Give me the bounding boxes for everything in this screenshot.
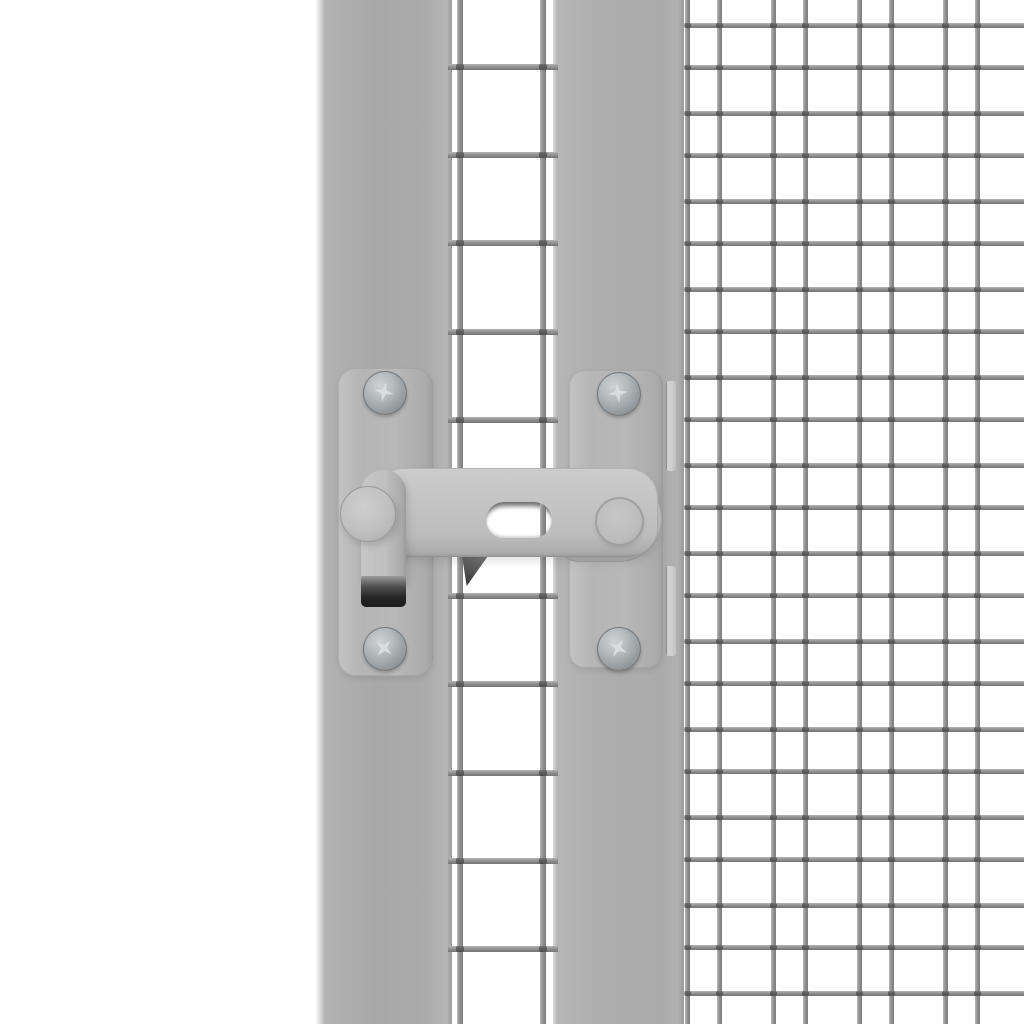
latch-guide-pin (595, 497, 644, 546)
mesh-weld-joint (974, 903, 981, 908)
mesh-weld-joint (942, 727, 949, 732)
mesh-weld-joint (856, 199, 863, 204)
mesh-weld-joint (770, 815, 777, 820)
mesh-weld-joint (856, 65, 863, 70)
mesh-weld-joint (856, 991, 863, 996)
mesh-wire-horizontal (686, 945, 1024, 950)
mesh-weld-joint (974, 991, 981, 996)
mesh-weld-joint (856, 769, 863, 774)
mesh-weld-joint (456, 946, 464, 952)
mesh-weld-joint (974, 551, 981, 556)
mesh-weld-joint (942, 505, 949, 510)
mesh-wire-horizontal (448, 593, 558, 599)
latch-shadow-wedge (462, 556, 488, 586)
mesh-weld-joint (802, 287, 809, 292)
mesh-weld-joint (802, 727, 809, 732)
mesh-weld-joint (684, 287, 691, 292)
mesh-weld-joint (716, 551, 723, 556)
mesh-weld-joint (716, 593, 723, 598)
mesh-weld-joint (942, 815, 949, 820)
mesh-weld-joint (856, 505, 863, 510)
mesh-wire-horizontal (448, 681, 558, 687)
mesh-weld-joint (802, 593, 809, 598)
mesh-weld-joint (974, 593, 981, 598)
mesh-weld-joint (684, 857, 691, 862)
mesh-weld-joint (716, 329, 723, 334)
mesh-weld-joint (539, 329, 547, 335)
mesh-wire-horizontal (448, 152, 558, 158)
mesh-weld-joint (856, 111, 863, 116)
mesh-wire-horizontal (686, 639, 1024, 644)
mesh-weld-joint (716, 65, 723, 70)
mesh-weld-joint (684, 903, 691, 908)
mesh-wire-horizontal (686, 199, 1024, 204)
mesh-weld-joint (856, 903, 863, 908)
mesh-wire-vertical (889, 0, 894, 1024)
mesh-wire-horizontal (448, 417, 558, 423)
mesh-weld-joint (888, 945, 895, 950)
mesh-weld-joint (802, 857, 809, 862)
mesh-wire-horizontal (448, 240, 558, 246)
mesh-weld-joint (770, 417, 777, 422)
mesh-weld-joint (770, 857, 777, 862)
mesh-wire-horizontal (448, 64, 558, 70)
mesh-weld-joint (716, 991, 723, 996)
mesh-weld-joint (770, 287, 777, 292)
mesh-weld-joint (856, 593, 863, 598)
mesh-weld-joint (770, 727, 777, 732)
mesh-weld-joint (716, 727, 723, 732)
latch-adjustment-slot (486, 502, 552, 538)
mesh-weld-joint (684, 681, 691, 686)
mesh-weld-joint (856, 463, 863, 468)
mesh-wire-horizontal (448, 946, 558, 952)
screw-bottom-left (363, 627, 407, 671)
mesh-weld-joint (942, 639, 949, 644)
mesh-weld-joint (888, 65, 895, 70)
product-photo-scene (0, 0, 1024, 1024)
mesh-weld-joint (770, 199, 777, 204)
mesh-weld-joint (888, 551, 895, 556)
mesh-weld-joint (802, 111, 809, 116)
mesh-wire-vertical (975, 0, 980, 1024)
mesh-clip-slot (666, 566, 676, 656)
mesh-wire-horizontal (686, 23, 1024, 28)
mesh-weld-joint (539, 946, 547, 952)
mesh-weld-joint (888, 375, 895, 380)
mesh-weld-joint (888, 111, 895, 116)
mesh-weld-joint (716, 903, 723, 908)
mesh-weld-joint (942, 417, 949, 422)
mesh-wire-vertical (803, 0, 808, 1024)
mesh-weld-joint (716, 23, 723, 28)
mesh-weld-joint (716, 639, 723, 644)
mesh-weld-joint (684, 551, 691, 556)
mesh-wire-vertical (717, 0, 722, 1024)
mesh-weld-joint (974, 23, 981, 28)
mesh-weld-joint (888, 769, 895, 774)
mesh-weld-joint (802, 505, 809, 510)
mesh-weld-joint (456, 329, 464, 335)
mesh-weld-joint (974, 463, 981, 468)
mesh-weld-joint (974, 417, 981, 422)
mesh-weld-joint (716, 241, 723, 246)
mesh-weld-joint (684, 375, 691, 380)
mesh-weld-joint (770, 551, 777, 556)
mesh-weld-joint (684, 593, 691, 598)
mesh-weld-joint (456, 770, 464, 776)
mesh-weld-joint (716, 505, 723, 510)
mesh-weld-joint (684, 945, 691, 950)
mesh-weld-joint (942, 991, 949, 996)
mesh-weld-joint (456, 240, 464, 246)
mesh-weld-joint (770, 505, 777, 510)
mesh-weld-joint (942, 463, 949, 468)
mesh-weld-joint (802, 945, 809, 950)
mesh-weld-joint (888, 593, 895, 598)
mesh-weld-joint (539, 593, 547, 599)
mesh-weld-joint (942, 903, 949, 908)
mesh-weld-joint (456, 681, 464, 687)
mesh-weld-joint (802, 417, 809, 422)
mesh-weld-joint (856, 815, 863, 820)
mesh-weld-joint (770, 945, 777, 950)
mesh-weld-joint (856, 23, 863, 28)
mesh-weld-joint (974, 945, 981, 950)
mesh-wire-through-slot (540, 502, 546, 538)
mesh-weld-joint (684, 769, 691, 774)
mesh-weld-joint (974, 199, 981, 204)
mesh-weld-joint (716, 815, 723, 820)
mesh-clip-slot (666, 381, 676, 471)
mesh-wire-horizontal (686, 153, 1024, 158)
mesh-weld-joint (456, 858, 464, 864)
mesh-weld-joint (716, 945, 723, 950)
mesh-weld-joint (942, 681, 949, 686)
mesh-weld-joint (684, 639, 691, 644)
mesh-weld-joint (770, 769, 777, 774)
mesh-weld-joint (888, 505, 895, 510)
mesh-weld-joint (856, 329, 863, 334)
mesh-weld-joint (888, 417, 895, 422)
mesh-weld-joint (856, 857, 863, 862)
mesh-weld-joint (716, 417, 723, 422)
mesh-weld-joint (802, 199, 809, 204)
mesh-weld-joint (888, 23, 895, 28)
mesh-weld-joint (856, 681, 863, 686)
mesh-weld-joint (684, 153, 691, 158)
mesh-weld-joint (888, 903, 895, 908)
mesh-weld-joint (974, 241, 981, 246)
mesh-weld-joint (856, 945, 863, 950)
latch-handle-dark-tip (361, 576, 406, 607)
mesh-weld-joint (456, 152, 464, 158)
mesh-weld-joint (802, 23, 809, 28)
mesh-weld-joint (974, 375, 981, 380)
mesh-weld-joint (888, 329, 895, 334)
mesh-weld-joint (974, 815, 981, 820)
mesh-weld-joint (770, 153, 777, 158)
mesh-wire-horizontal (448, 858, 558, 864)
mesh-wire-horizontal (686, 111, 1024, 116)
mesh-weld-joint (770, 375, 777, 380)
mesh-weld-joint (802, 681, 809, 686)
mesh-wire-vertical (857, 0, 862, 1024)
mesh-weld-joint (942, 23, 949, 28)
mesh-wire-horizontal (686, 287, 1024, 292)
mesh-weld-joint (770, 991, 777, 996)
mesh-wire-vertical (771, 0, 776, 1024)
mesh-weld-joint (770, 681, 777, 686)
mesh-weld-joint (770, 65, 777, 70)
mesh-weld-joint (974, 65, 981, 70)
mesh-wire-horizontal (686, 551, 1024, 556)
mesh-wire-horizontal (686, 681, 1024, 686)
mesh-weld-joint (684, 815, 691, 820)
mesh-weld-joint (856, 287, 863, 292)
mesh-weld-joint (539, 417, 547, 423)
mesh-wire-horizontal (686, 903, 1024, 908)
phillips-recess-icon (604, 634, 631, 661)
mesh-weld-joint (802, 65, 809, 70)
mesh-weld-joint (974, 287, 981, 292)
mesh-weld-joint (942, 945, 949, 950)
mesh-weld-joint (539, 152, 547, 158)
mesh-weld-joint (716, 463, 723, 468)
mesh-weld-joint (539, 681, 547, 687)
mesh-weld-joint (770, 329, 777, 334)
mesh-weld-joint (888, 681, 895, 686)
mesh-weld-joint (684, 727, 691, 732)
mesh-weld-joint (942, 769, 949, 774)
mesh-weld-joint (770, 241, 777, 246)
mesh-weld-joint (716, 199, 723, 204)
mesh-weld-joint (456, 64, 464, 70)
mesh-wire-horizontal (686, 593, 1024, 598)
mesh-weld-joint (684, 991, 691, 996)
mesh-weld-joint (802, 903, 809, 908)
mesh-weld-joint (770, 593, 777, 598)
mesh-wire-horizontal (686, 463, 1024, 468)
mesh-weld-joint (942, 199, 949, 204)
mesh-weld-joint (456, 417, 464, 423)
mesh-weld-joint (974, 857, 981, 862)
mesh-wire-horizontal (686, 375, 1024, 380)
mesh-weld-joint (974, 639, 981, 644)
mesh-weld-joint (802, 153, 809, 158)
mesh-weld-joint (802, 639, 809, 644)
mesh-weld-joint (716, 681, 723, 686)
mesh-weld-joint (684, 241, 691, 246)
mesh-weld-joint (770, 639, 777, 644)
phillips-recess-icon (372, 380, 396, 404)
mesh-weld-joint (888, 991, 895, 996)
screw-top-right (597, 372, 641, 416)
mesh-weld-joint (974, 727, 981, 732)
mesh-weld-joint (888, 815, 895, 820)
screw-top-left (363, 371, 407, 415)
phillips-recess-icon (607, 382, 630, 405)
mesh-weld-joint (802, 329, 809, 334)
mesh-weld-joint (802, 769, 809, 774)
mesh-weld-joint (888, 153, 895, 158)
mesh-weld-joint (942, 153, 949, 158)
mesh-weld-joint (802, 991, 809, 996)
mesh-weld-joint (888, 639, 895, 644)
mesh-wire-horizontal (686, 505, 1024, 510)
mesh-weld-joint (716, 769, 723, 774)
mesh-weld-joint (684, 463, 691, 468)
mesh-weld-joint (770, 23, 777, 28)
mesh-wire-horizontal (686, 65, 1024, 70)
mesh-wire-horizontal (686, 417, 1024, 422)
mesh-weld-joint (716, 153, 723, 158)
mesh-wire-horizontal (686, 991, 1024, 996)
mesh-weld-joint (684, 23, 691, 28)
mesh-weld-joint (974, 681, 981, 686)
mesh-weld-joint (716, 111, 723, 116)
screw-bottom-right (597, 627, 641, 671)
mesh-wire-horizontal (686, 815, 1024, 820)
mesh-wire-horizontal (686, 727, 1024, 732)
mesh-weld-joint (684, 417, 691, 422)
mesh-weld-joint (802, 551, 809, 556)
mesh-weld-joint (770, 463, 777, 468)
mesh-weld-joint (539, 64, 547, 70)
mesh-weld-joint (888, 463, 895, 468)
mesh-weld-joint (802, 375, 809, 380)
mesh-wire-horizontal (686, 329, 1024, 334)
mesh-wire-vertical (685, 0, 690, 1024)
mesh-weld-joint (942, 857, 949, 862)
mesh-weld-joint (539, 858, 547, 864)
mesh-weld-joint (684, 65, 691, 70)
mesh-weld-joint (856, 551, 863, 556)
mesh-weld-joint (684, 199, 691, 204)
mesh-wire-horizontal (448, 329, 558, 335)
mesh-weld-joint (539, 770, 547, 776)
mesh-weld-joint (716, 857, 723, 862)
mesh-weld-joint (684, 111, 691, 116)
mesh-weld-joint (856, 639, 863, 644)
mesh-weld-joint (888, 287, 895, 292)
mesh-weld-joint (802, 815, 809, 820)
mesh-weld-joint (716, 375, 723, 380)
mesh-weld-joint (888, 199, 895, 204)
mesh-weld-joint (974, 153, 981, 158)
mesh-weld-joint (942, 111, 949, 116)
mesh-weld-joint (456, 593, 464, 599)
mesh-weld-joint (974, 769, 981, 774)
mesh-weld-joint (856, 727, 863, 732)
mesh-wire-horizontal (686, 769, 1024, 774)
mesh-weld-joint (888, 727, 895, 732)
mesh-weld-joint (856, 153, 863, 158)
mesh-wire-horizontal (686, 857, 1024, 862)
mesh-weld-joint (888, 857, 895, 862)
mesh-weld-joint (942, 287, 949, 292)
mesh-weld-joint (942, 329, 949, 334)
mesh-weld-joint (856, 417, 863, 422)
mesh-weld-joint (770, 903, 777, 908)
phillips-recess-icon (370, 634, 398, 662)
mesh-weld-joint (684, 329, 691, 334)
mesh-weld-joint (942, 593, 949, 598)
mesh-weld-joint (974, 505, 981, 510)
mesh-weld-joint (942, 241, 949, 246)
mesh-weld-joint (974, 329, 981, 334)
mesh-weld-joint (856, 241, 863, 246)
mesh-weld-joint (770, 111, 777, 116)
mesh-weld-joint (856, 375, 863, 380)
mesh-weld-joint (974, 111, 981, 116)
mesh-weld-joint (888, 241, 895, 246)
mesh-weld-joint (684, 505, 691, 510)
mesh-weld-joint (539, 240, 547, 246)
mesh-weld-joint (802, 463, 809, 468)
mesh-weld-joint (716, 287, 723, 292)
mesh-weld-joint (942, 551, 949, 556)
mesh-wire-horizontal (448, 770, 558, 776)
mesh-wire-horizontal (686, 241, 1024, 246)
mesh-wire-vertical (943, 0, 948, 1024)
mesh-weld-joint (942, 65, 949, 70)
latch-pivot-bolt (340, 486, 396, 542)
mesh-weld-joint (802, 241, 809, 246)
mesh-weld-joint (942, 375, 949, 380)
